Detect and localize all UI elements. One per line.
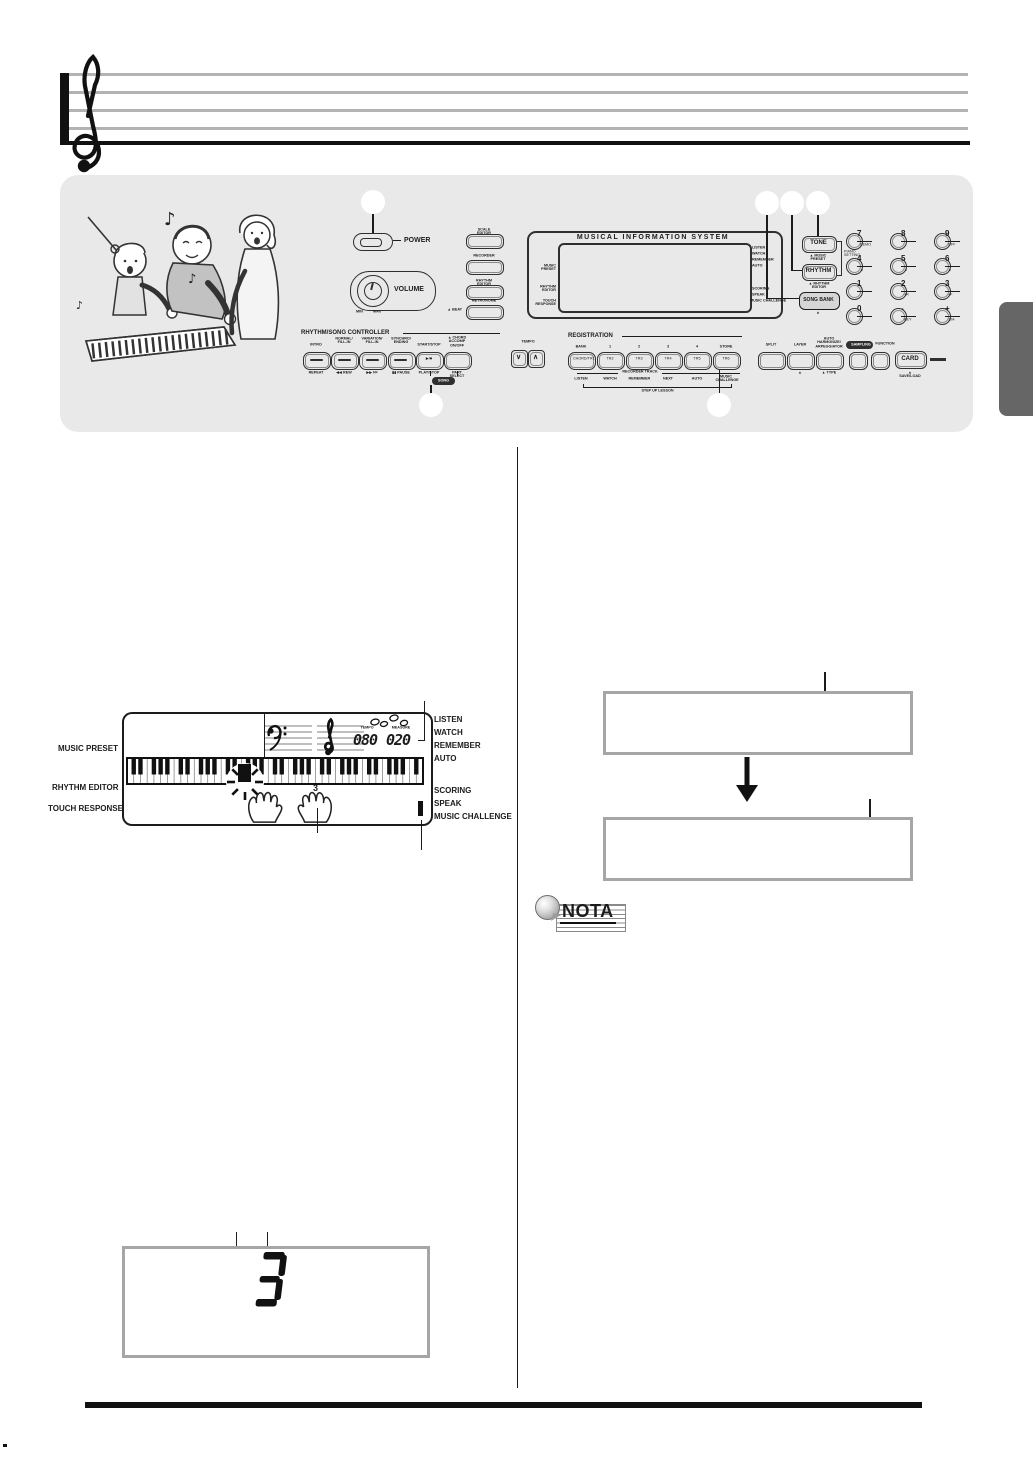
registration-store-top-label: STORE: [717, 345, 736, 349]
step-up-lesson-label: STEP UP LESSON: [628, 389, 687, 393]
lcd-listen-label: LISTEN: [434, 715, 462, 724]
play-stop-glyph: ▶/■: [421, 357, 437, 361]
store-button[interactable]: [713, 352, 741, 370]
display-listen-label: LISTEN: [752, 246, 765, 250]
lesson-label-3: NEXT: [657, 377, 678, 381]
recorder-track-label: RECORDER TRACK: [620, 370, 660, 374]
lcd-tempo-label: TEMPO: [358, 726, 377, 730]
numpad-7-label: 7: [857, 229, 861, 238]
controller-intro-button[interactable]: [303, 352, 331, 370]
numpad-2-sub-label: +R: [904, 293, 909, 297]
function-label: FUNCTION: [874, 342, 895, 346]
registration-1-button[interactable]: [597, 352, 625, 370]
svg-text:♪: ♪: [76, 299, 83, 312]
numpad-underline: [901, 266, 916, 267]
numpad-underline: [901, 241, 916, 242]
sampling-label: SAMPLING: [851, 343, 868, 347]
svg-text:♪: ♪: [188, 272, 196, 287]
registration-3-button-label: TR4: [660, 357, 676, 361]
lcd-finger-number: 3: [313, 783, 318, 793]
harmonize-label: AUTO HARMONIZE/ ARPEGGIATOR: [815, 337, 844, 349]
lesson-label-5: MUSIC CHALLENGE: [715, 375, 736, 383]
callout-circle-start-stop: [419, 393, 443, 417]
callout-line: [430, 385, 432, 393]
lesson-label-2: REMEMBER: [628, 377, 649, 381]
numpad-3-label: 3: [945, 279, 949, 288]
controller-accomp-on-off-button[interactable]: [444, 352, 472, 370]
flashing-key: [238, 764, 251, 782]
numpad-6-label: 6: [945, 254, 949, 263]
display-music-challenge-label: MUSIC CHALLENGE: [750, 299, 786, 303]
rhythm-button-label: RHYTHM: [802, 268, 835, 274]
display-speak-label: SPEAK: [752, 293, 765, 297]
type-sub-label: ▲ TYPE: [821, 371, 837, 375]
beat-sub-label: ▲ BEAT: [447, 308, 462, 312]
footer-rule: [85, 1402, 922, 1408]
numpad-plus-label: +: [945, 304, 950, 313]
lcd-digit-3: [248, 1252, 292, 1308]
controller-variation-fill-in-label: VARIATION/ FILL-IN: [360, 337, 385, 345]
numpad-underline: [857, 291, 872, 292]
display-screen: [558, 243, 752, 313]
callout-line: [372, 214, 374, 235]
step-up-tick: [731, 384, 732, 388]
controller-intro-label: INTRO: [304, 343, 329, 347]
lcd-music-challenge-label: MUSIC CHALLENGE: [434, 812, 512, 821]
store-button-label: TR6: [718, 357, 734, 361]
tempo-down-glyph: ∨: [511, 353, 526, 361]
numpad-plus-sub-label: 10A: [948, 318, 955, 322]
lesson-label-4: AUTO: [686, 377, 707, 381]
music-challenge-indicator: [418, 801, 423, 816]
card-slot-line: [930, 358, 946, 361]
registration-2-button[interactable]: [626, 352, 654, 370]
staff-line: [62, 127, 968, 130]
controller-accomp-on-off-label: ▲ CHORD ACCOMP ON/OFF: [445, 336, 470, 348]
controller-start-stop-bottom-label: PLAY/STOP: [416, 371, 441, 375]
step-up-rule: [583, 387, 731, 388]
controller-normal-fill-in-button[interactable]: [331, 352, 359, 370]
lcd-tempo-value: 080: [353, 731, 377, 749]
staff-header: [0, 0, 1033, 175]
layer-button[interactable]: [787, 352, 815, 370]
callout-line: [421, 820, 423, 850]
numpad-6-sub-label: ▲: [948, 268, 952, 272]
registration-3-button[interactable]: [655, 352, 683, 370]
controller-button-slot: [310, 359, 323, 362]
numpad-8-label: 8: [901, 229, 905, 238]
lcd-music-preset-label: MUSIC PRESET: [52, 744, 118, 753]
numpad-1-label: 1: [857, 279, 861, 288]
numpad-minus-label: -: [901, 304, 904, 313]
lcd-auto-label: AUTO: [434, 754, 457, 763]
controller-button-slot: [394, 359, 407, 362]
power-label: POWER: [404, 237, 430, 244]
numpad-4-sub-label: ▲: [860, 268, 864, 272]
manual-page: ♪ ♪ ♪ POWER VOLUME MIN MAX SCALE EDITOR …: [0, 0, 1033, 1458]
numpad-5-label: 5: [901, 254, 905, 263]
power-dash: [393, 240, 401, 241]
staff-line: [62, 109, 968, 112]
metronome-label: METRONOME: [470, 299, 497, 303]
bank-button[interactable]: [568, 352, 596, 370]
lcd-rhythm-editor-label: RHYTHM EDITOR: [52, 783, 118, 792]
callout-circle-tone: [806, 191, 830, 215]
callout-circle-power: [361, 190, 385, 214]
display-auto-label: AUTO: [752, 264, 762, 268]
function-button[interactable]: [871, 352, 890, 370]
recorder-track-rule: [662, 373, 740, 374]
piano-setting-bracket: [837, 241, 842, 276]
controller-start-stop-label: START/STOP: [416, 343, 441, 347]
display-music-preset-label: MUSIC PRESET: [537, 264, 556, 272]
scale-editor-button[interactable]: [466, 234, 504, 249]
controller-button-slot: [338, 359, 351, 362]
numpad-underline: [945, 266, 960, 267]
numpad-7-sub-label: DEMO: [860, 243, 871, 247]
staff-line: [62, 91, 968, 94]
power-button-inner: [360, 238, 382, 247]
registration-2-button-label: TR3: [631, 357, 647, 361]
registration-4-button[interactable]: [684, 352, 712, 370]
display-remember-label: REMEMBER: [752, 258, 774, 262]
numpad-0-label: 0: [857, 304, 861, 313]
numpad-3-sub-label: +F: [948, 293, 952, 297]
down-arrow-icon: [734, 757, 760, 803]
numpad-underline: [857, 316, 872, 317]
lcd-keyboard: [126, 757, 424, 785]
controller-normal-fill-in-bottom-label: ◀◀ REW: [332, 371, 357, 375]
controller-title-rule: [403, 333, 500, 334]
layer-sub-label: ▲: [794, 371, 806, 375]
metronome-button[interactable]: [466, 305, 504, 320]
numpad-5-sub-label: ▲: [904, 268, 908, 272]
controller-synchro-ending-bottom-label: ▮▮ PAUSE: [388, 371, 413, 375]
callout-box-bottom: [603, 817, 913, 881]
controller-variation-fill-in-button[interactable]: [359, 352, 387, 370]
volume-max-label: MAX: [373, 310, 381, 314]
callout-line: [264, 714, 266, 759]
lcd-measure-value: 020: [386, 731, 410, 749]
callout-circle-song-bank: [755, 191, 779, 215]
registration-title-rule: [622, 336, 742, 337]
numpad-9-sub-label: OFF: [948, 243, 955, 247]
family-illustration: ♪ ♪ ♪: [72, 183, 322, 388]
left-hand-icon: [243, 786, 287, 824]
callout-box-top: [603, 691, 913, 755]
registration-registration-3-top-label: 3: [659, 345, 678, 349]
numpad-minus-sub-label: KEY: [904, 318, 911, 322]
controller-accomp-on-off-bottom-label: PART SELECT: [445, 371, 470, 379]
callout-line: [791, 270, 802, 271]
registration-title: REGISTRATION: [568, 333, 613, 339]
recorder-track-rule: [577, 373, 618, 374]
display-rhythm-editor-label: RHYTHM EDITOR: [536, 285, 556, 293]
sampling-button[interactable]: [849, 352, 868, 370]
lcd-scoring-label: SCORING: [434, 786, 471, 795]
auto-harmonize-button[interactable]: [816, 352, 844, 370]
page-corner-mark: [3, 1444, 7, 1447]
volume-min-label: MIN: [356, 310, 363, 314]
song-bank-sub-label: ▲: [812, 311, 823, 315]
note-label: NOTA: [560, 901, 616, 924]
lcd-touch-response-label: TOUCH RESPONSE: [48, 804, 118, 813]
rhythm-editor-button[interactable]: [466, 285, 504, 300]
layer-label: LAYER: [791, 343, 810, 347]
callout-circle-rhythm: [780, 191, 804, 215]
callout-circle-store: [707, 393, 731, 417]
numpad-9-label: 9: [945, 229, 949, 238]
svg-text:♪: ♪: [164, 209, 176, 230]
controller-button-slot: [366, 359, 379, 362]
callout-line: [791, 215, 793, 271]
card-sub-label: ▲ SAVE/LOAD: [898, 371, 923, 379]
tempo-up-glyph: ∧: [528, 353, 543, 361]
numpad-underline: [945, 291, 960, 292]
controller-synchro-ending-button[interactable]: [388, 352, 416, 370]
registration-registration-2-top-label: 2: [630, 345, 649, 349]
tone-sub-label: ▲ MUSIC PRESET: [806, 254, 831, 262]
rhythm-sub-label: ▲ RHYTHM EDITOR: [805, 282, 832, 290]
staff-line-bottom: [60, 141, 970, 145]
tempo-label: TEMPO: [516, 340, 541, 344]
numpad-underline: [901, 291, 916, 292]
lcd-measure-label: MEASURE: [390, 726, 411, 730]
callout-line: [418, 740, 424, 741]
split-label: SPLIT: [762, 343, 781, 347]
lcd-speak-label: SPEAK: [434, 799, 462, 808]
controller-synchro-ending-label: SYNCHRO/ ENDING: [388, 337, 413, 345]
registration-bank-top-label: BANK: [572, 345, 591, 349]
lcd-watch-label: WATCH: [434, 728, 463, 737]
controller-normal-fill-in-label: NORMAL/ FILL-IN: [332, 337, 357, 345]
chapter-side-tab: [999, 302, 1033, 416]
numpad-2-label: 2: [901, 279, 905, 288]
display-touch-response-label: TOUCH RESPONSE: [535, 299, 556, 307]
display-watch-label: WATCH: [752, 252, 765, 256]
lesson-label-1: WATCH: [599, 377, 620, 381]
column-divider: [517, 447, 519, 1388]
bank-button-label: CHORD/TR1: [573, 357, 589, 361]
numpad-underline: [857, 266, 872, 267]
controller-start-stop-button[interactable]: [416, 352, 444, 370]
song-pill-label: SONG: [436, 379, 450, 383]
split-button[interactable]: [758, 352, 786, 370]
card-button-label: CARD: [895, 356, 925, 362]
numpad-underline: [901, 316, 916, 317]
numpad-4-label: 4: [857, 254, 861, 263]
numpad-underline: [945, 241, 960, 242]
lesson-label-0: LISTEN: [570, 377, 591, 381]
song-bank-button-label: SONG BANK: [799, 297, 838, 303]
tone-button-label: TONE: [802, 240, 835, 246]
callout-line: [766, 215, 768, 299]
registration-registration-4-top-label: 4: [688, 345, 707, 349]
registration-registration-1-top-label: 1: [601, 345, 620, 349]
lcd-remember-label: REMEMBER: [434, 741, 481, 750]
numpad-underline: [945, 316, 960, 317]
treble-clef-icon: [66, 52, 114, 176]
controller-intro-bottom-label: REPEAT: [304, 371, 329, 375]
callout-line: [424, 701, 426, 741]
recorder-button[interactable]: [466, 260, 504, 275]
callout-line: [817, 215, 819, 236]
numpad-underline: [857, 241, 872, 242]
controller-title: RHYTHM/SONG CONTROLLER: [301, 330, 389, 336]
volume-label: VOLUME: [394, 286, 424, 293]
recorder-label: RECORDER: [470, 254, 497, 258]
staff-line: [62, 73, 968, 76]
registration-4-button-label: TR5: [689, 357, 705, 361]
callout-line: [317, 808, 319, 833]
callout-line: [766, 298, 800, 299]
display-title: MUSICAL INFORMATION SYSTEM: [527, 234, 779, 241]
controller-variation-fill-in-bottom-label: ▶▶ FF: [360, 371, 385, 375]
registration-1-button-label: TR2: [602, 357, 618, 361]
